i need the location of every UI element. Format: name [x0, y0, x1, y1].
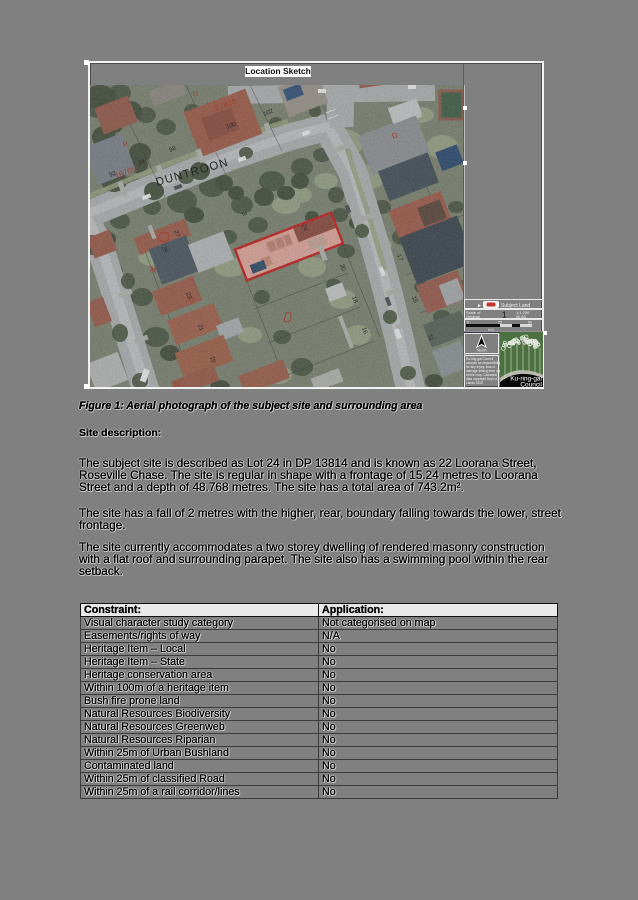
svg-text:North: North	[477, 348, 487, 353]
svg-text:Council: Council	[520, 382, 542, 388]
svg-text:Original: Original	[466, 314, 480, 319]
svg-text:►: ►	[477, 303, 482, 309]
svg-text:25: 25	[498, 321, 502, 325]
svg-text:(m): (m)	[488, 327, 495, 332]
svg-text:Subject Land: Subject Land	[501, 303, 530, 309]
svg-text:0: 0	[467, 321, 469, 325]
svg-text:@ A3: @ A3	[516, 314, 527, 319]
svg-text:50: 50	[528, 321, 532, 325]
svg-text:Lands 2005: Lands 2005	[466, 381, 483, 385]
svg-text:1: 1	[502, 311, 507, 320]
